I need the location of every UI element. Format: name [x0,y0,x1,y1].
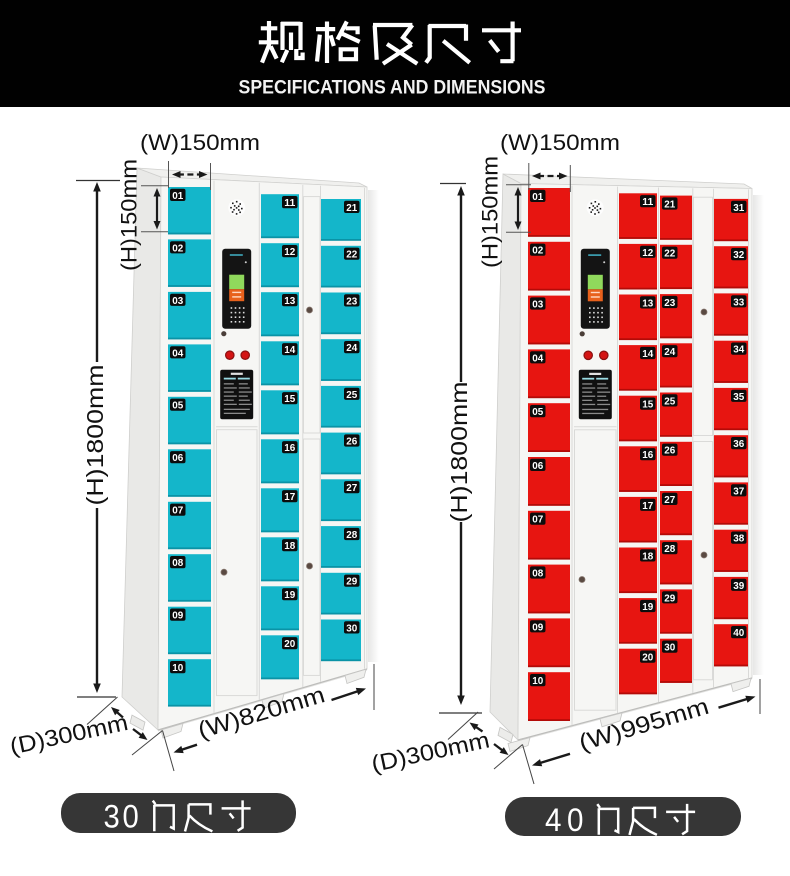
svg-text:(H)1800mm: (H)1800mm [446,382,472,523]
svg-text:27: 27 [664,495,675,506]
svg-text:12: 12 [284,247,295,258]
svg-text:05: 05 [172,401,183,412]
svg-text:26: 26 [346,437,357,448]
svg-text:(H)150mm: (H)150mm [478,156,503,268]
svg-text:SPECIFICATIONS AND DIMENSIONS: SPECIFICATIONS AND DIMENSIONS [239,78,546,99]
svg-text:06: 06 [172,453,183,464]
svg-text:35: 35 [733,392,744,403]
svg-text:14: 14 [284,345,295,356]
svg-text:31: 31 [733,203,744,214]
svg-text:26: 26 [664,446,675,457]
svg-text:(W)150mm: (W)150mm [500,130,620,155]
svg-text:02: 02 [532,246,543,257]
svg-text:17: 17 [642,501,653,512]
svg-text:28: 28 [664,544,675,555]
svg-text:03: 03 [172,296,183,307]
svg-text:20: 20 [642,653,653,664]
svg-text:27: 27 [346,483,357,494]
svg-text:07: 07 [172,506,183,517]
svg-text:21: 21 [346,203,357,214]
svg-text:33: 33 [733,297,744,308]
svg-text:38: 38 [733,534,744,545]
svg-text:23: 23 [346,296,357,307]
svg-text:16: 16 [642,450,653,461]
svg-text:06: 06 [532,461,543,472]
svg-text:40: 40 [733,628,744,639]
svg-text:01: 01 [532,192,543,203]
svg-text:32: 32 [733,250,744,261]
svg-text:18: 18 [642,551,653,562]
svg-text:30: 30 [346,623,357,634]
svg-text:19: 19 [642,602,653,613]
svg-text:19: 19 [284,590,295,601]
svg-text:25: 25 [346,390,357,401]
svg-text:29: 29 [664,593,675,604]
svg-text:29: 29 [346,577,357,588]
svg-text:(D)300mm: (D)300mm [369,726,492,776]
svg-text:11: 11 [284,198,295,209]
svg-text:11: 11 [642,197,653,208]
svg-text:01: 01 [172,191,183,202]
svg-text:30: 30 [104,799,142,835]
svg-text:08: 08 [532,569,543,580]
svg-text:(H)150mm: (H)150mm [117,159,142,271]
svg-text:16: 16 [284,443,295,454]
svg-text:30: 30 [664,643,675,654]
svg-text:(D)300mm: (D)300mm [7,709,130,759]
svg-text:37: 37 [733,486,744,497]
svg-text:10: 10 [172,663,183,674]
svg-text:40: 40 [545,802,589,838]
svg-text:36: 36 [733,439,744,450]
svg-text:09: 09 [172,611,183,622]
svg-text:09: 09 [532,622,543,633]
svg-text:28: 28 [346,530,357,541]
svg-text:13: 13 [642,298,653,309]
svg-text:21: 21 [664,200,675,211]
svg-text:34: 34 [733,345,744,356]
svg-text:39: 39 [733,581,744,592]
svg-text:22: 22 [664,249,675,260]
svg-text:15: 15 [284,394,295,405]
svg-text:(H)1800mm: (H)1800mm [82,365,108,506]
svg-text:13: 13 [284,296,295,307]
svg-text:15: 15 [642,400,653,411]
svg-text:04: 04 [532,353,543,364]
svg-text:18: 18 [284,541,295,552]
svg-text:14: 14 [642,349,653,360]
svg-text:25: 25 [664,396,675,407]
svg-text:04: 04 [172,348,183,359]
svg-text:(W)150mm: (W)150mm [140,130,260,155]
svg-text:24: 24 [664,347,675,358]
svg-text:08: 08 [172,558,183,569]
svg-text:07: 07 [532,515,543,526]
svg-text:10: 10 [532,676,543,687]
svg-text:05: 05 [532,407,543,418]
svg-text:02: 02 [172,243,183,254]
svg-text:20: 20 [284,639,295,650]
svg-text:23: 23 [664,298,675,309]
svg-text:03: 03 [532,300,543,311]
svg-text:12: 12 [642,248,653,259]
svg-text:22: 22 [346,250,357,261]
svg-text:24: 24 [346,343,357,354]
svg-text:17: 17 [284,492,295,503]
